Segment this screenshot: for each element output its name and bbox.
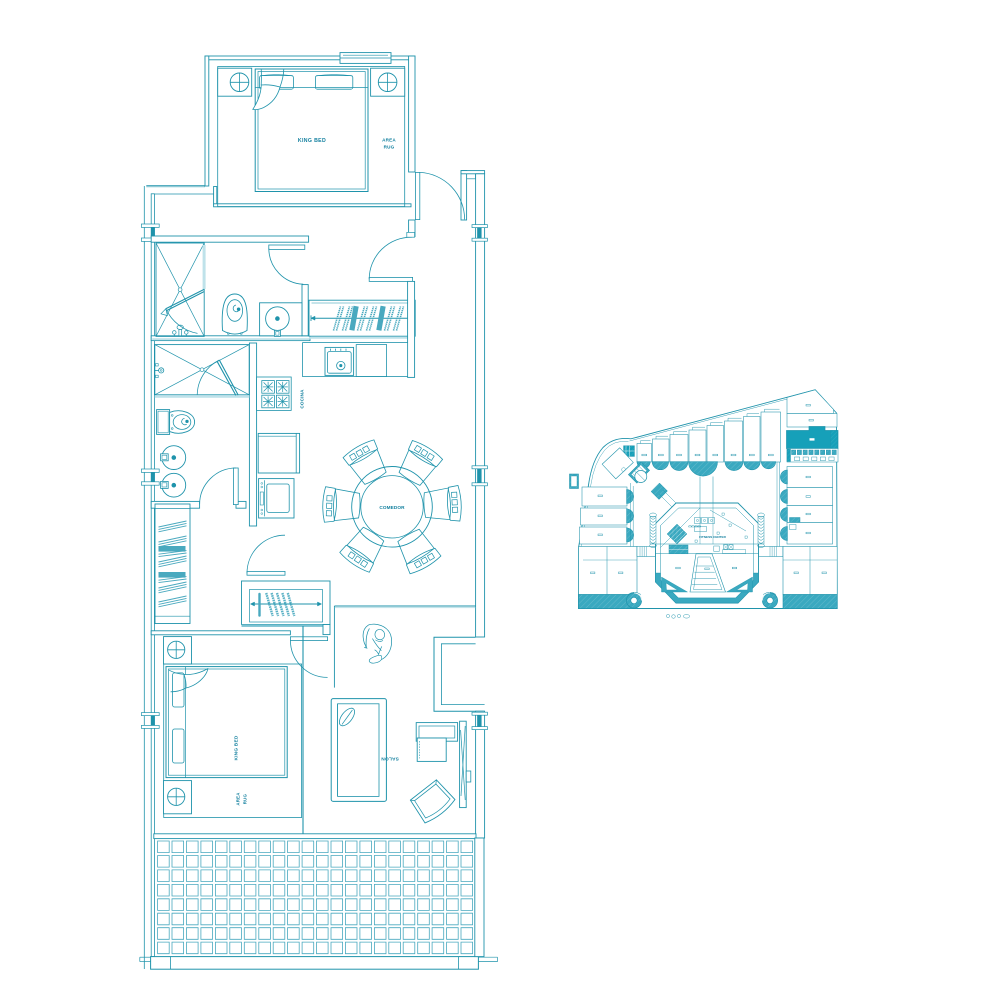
svg-text:AREA: AREA	[382, 138, 396, 143]
svg-text:COMEDOR: COMEDOR	[379, 505, 405, 510]
svg-text:SALON: SALON	[381, 756, 399, 762]
svg-text:KING BED: KING BED	[234, 735, 240, 760]
svg-text:RUG: RUG	[384, 144, 395, 149]
svg-text:AREA: AREA	[236, 792, 241, 806]
svg-text:COCINA: COCINA	[300, 389, 305, 409]
svg-text:RUG: RUG	[242, 793, 247, 804]
svg-text:KING BED: KING BED	[298, 138, 326, 144]
svg-text:FITNESS CENTER: FITNESS CENTER	[699, 535, 726, 539]
